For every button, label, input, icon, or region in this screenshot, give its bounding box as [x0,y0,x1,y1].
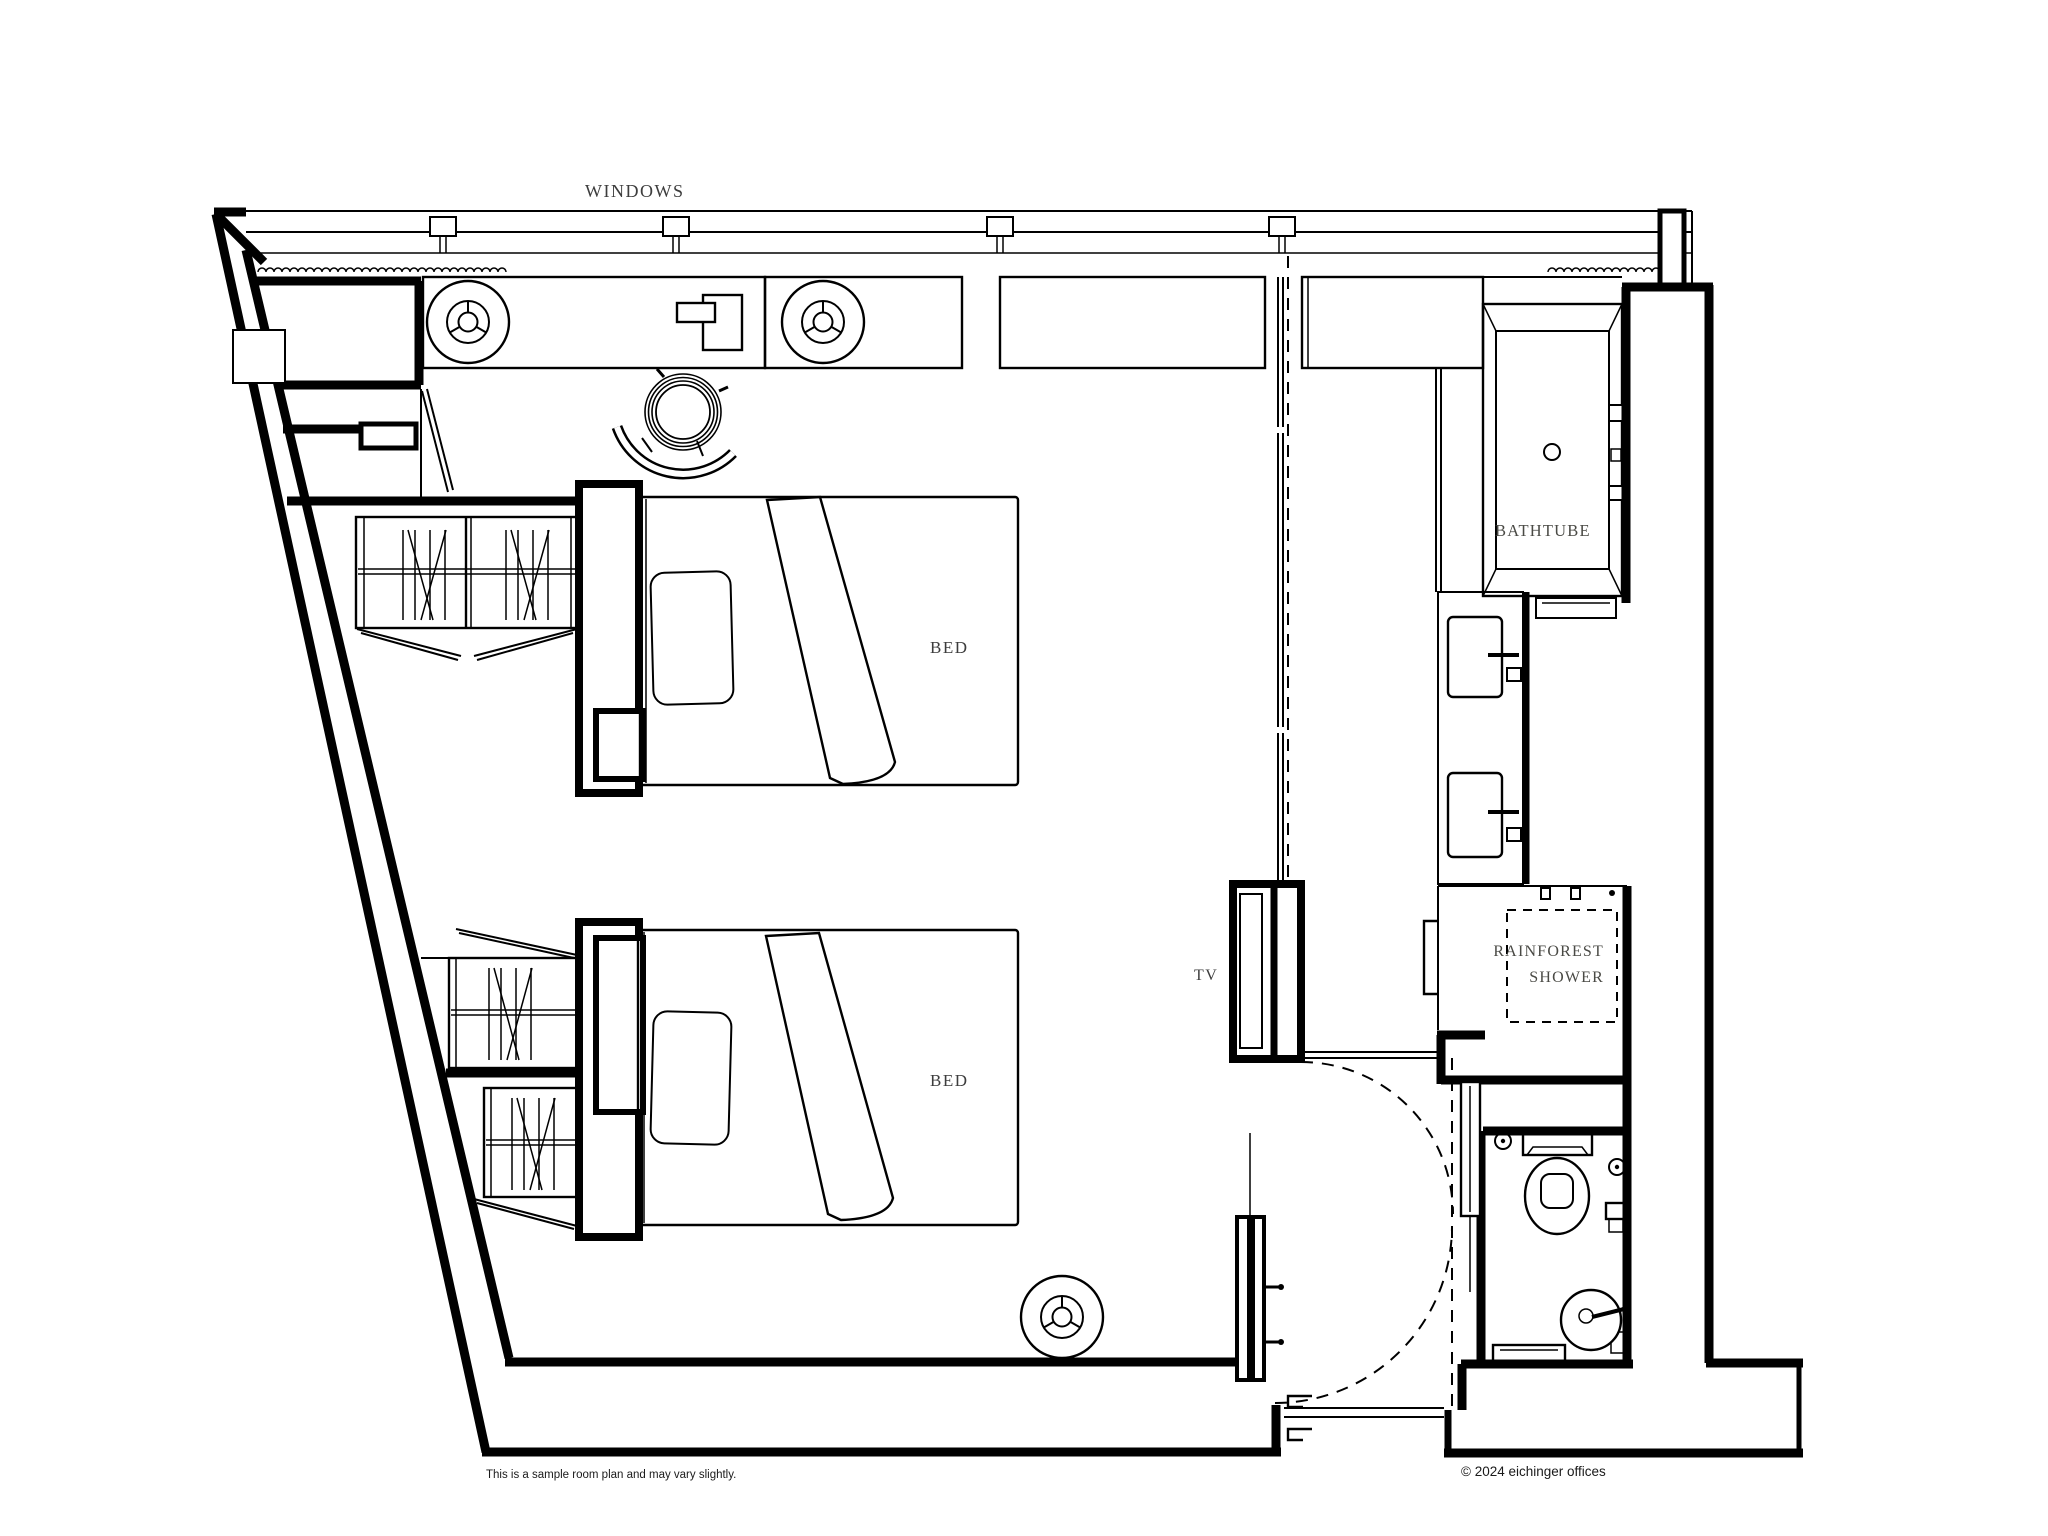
ceiling-fan-icon [782,281,864,363]
bed-1-label: BED [930,638,969,657]
wardrobe-closet-2-lower [474,1088,579,1229]
duvet [767,497,895,784]
tap-icon [1609,486,1623,500]
toilet-icon [1523,1132,1592,1234]
wardrobe-closet-2-upper [421,929,579,1068]
footer-note: This is a sample room plan and may vary … [486,1469,736,1481]
window-mullion [663,217,689,253]
bathtub [1483,304,1623,596]
floor-plan-page: WINDOWS [0,0,2048,1536]
shower-door-handle [1424,921,1437,994]
door-stop-icon [1288,1429,1312,1440]
tv-unit [1233,884,1301,1059]
window-counter [423,277,1622,368]
ceiling-fan-icon [427,281,509,363]
pillow-icon [650,1011,731,1145]
bed-2-label: BED [930,1071,969,1090]
floor-plan-svg: WINDOWS [0,0,2048,1536]
entry-area [1237,1058,1462,1452]
door-swing-arc [1275,1226,1452,1403]
shower-tray [1507,910,1617,1022]
shower-control-icon [1541,888,1550,899]
shower-label-line2: SHOWER [1529,969,1604,986]
shower-label-line1: RAINFOREST [1493,943,1604,960]
tap-icon [1609,405,1623,421]
ceiling-fan-icon [1021,1276,1103,1358]
wash-basin-icon [1561,1290,1630,1353]
wardrobe-closet-1 [356,517,577,660]
shower-control-icon [1571,888,1580,899]
wall-notch [1660,211,1684,285]
radiator-icon-right [1548,268,1660,272]
door-swing-arc [1301,1062,1453,1214]
radiator-icon-left [258,268,506,272]
bathroom-divider [1436,368,1441,592]
vanity-mirror-chair-icon [617,369,733,474]
sink-icon [1448,773,1502,857]
pillow-icon [650,571,733,705]
window-band [246,211,1692,285]
copyright-note: © 2024 eichinger offices [1461,1464,1606,1479]
tv-label: TV [1194,967,1218,984]
pocket-niche [233,330,285,383]
corridor-wall [1301,1052,1437,1058]
wc-room [1461,1082,1631,1363]
entry-door [1237,1133,1284,1380]
window-mullion [1269,217,1295,253]
vanity-sinks [1438,592,1526,884]
drain-icon [1544,444,1560,460]
window-mullion [430,217,456,253]
window-mullion [987,217,1013,253]
bathtub-label: BATHTUBE [1495,521,1591,540]
tub-shelf [1536,598,1616,618]
closet-alcove [283,389,453,497]
desk-equipment-icon [677,295,742,350]
duvet [766,933,893,1220]
windows-label: WINDOWS [585,181,684,201]
outer-walls [214,212,1803,1453]
